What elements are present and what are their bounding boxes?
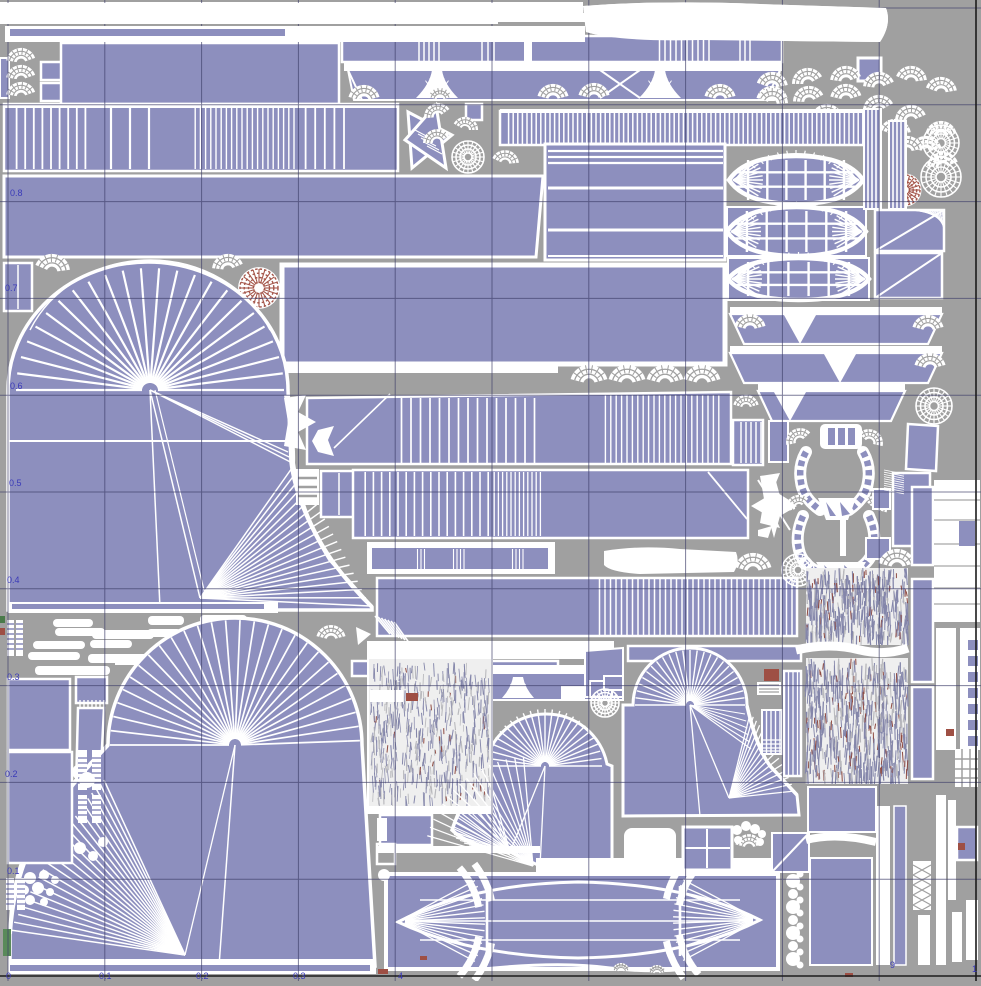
svg-text:0.2: 0.2 — [5, 769, 18, 779]
svg-text:0.2: 0.2 — [196, 971, 209, 981]
svg-text:0.6: 0.6 — [10, 381, 23, 391]
svg-text:9: 9 — [890, 960, 895, 970]
svg-text:0.4: 0.4 — [7, 575, 20, 585]
svg-text:0.1: 0.1 — [99, 971, 112, 981]
svg-text:0.8: 0.8 — [10, 188, 23, 198]
svg-text:0.7: 0.7 — [5, 283, 18, 293]
svg-text:0: 0 — [6, 971, 11, 981]
svg-text:0.3: 0.3 — [293, 971, 306, 981]
svg-text:1: 1 — [972, 964, 977, 974]
svg-text:4: 4 — [398, 971, 403, 981]
svg-text:0.3: 0.3 — [7, 672, 20, 682]
svg-text:0.1: 0.1 — [7, 866, 20, 876]
svg-text:0.5: 0.5 — [9, 478, 22, 488]
